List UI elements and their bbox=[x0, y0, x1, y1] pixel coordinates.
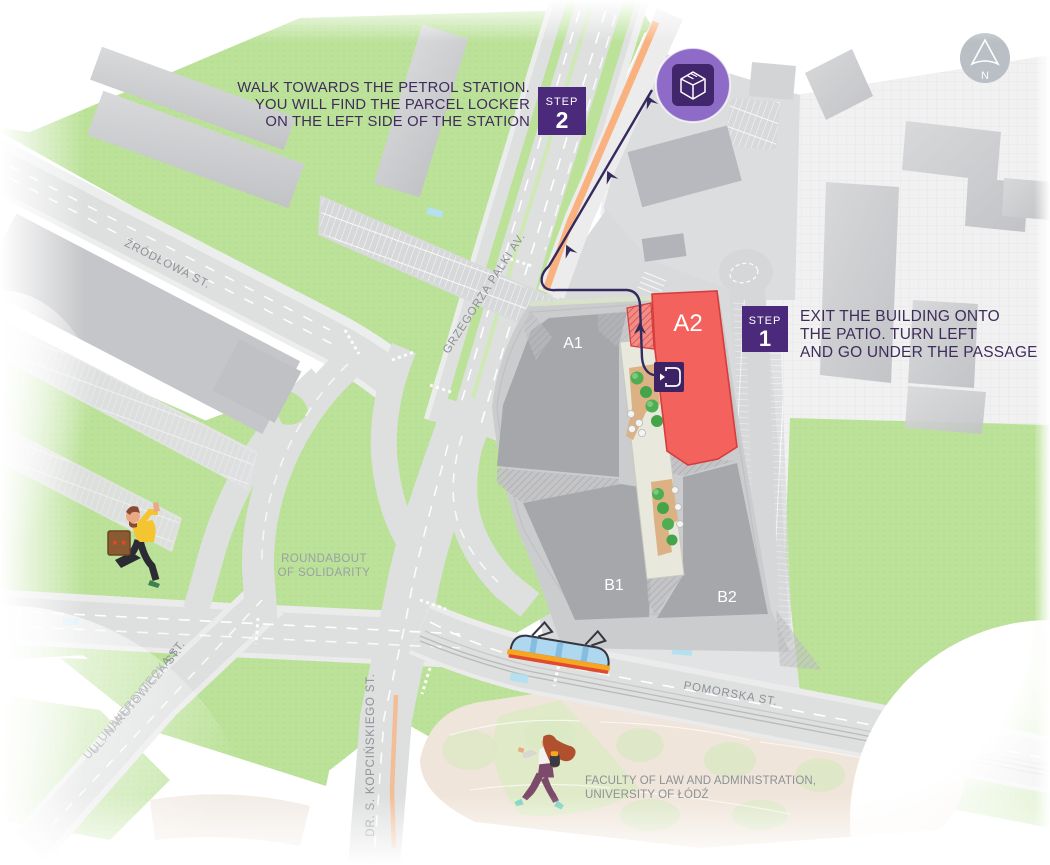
svg-text:THE PATIO. TURN LEFT: THE PATIO. TURN LEFT bbox=[800, 326, 977, 343]
svg-text:N: N bbox=[981, 70, 989, 82]
svg-text:EXIT THE BUILDING ONTO: EXIT THE BUILDING ONTO bbox=[800, 308, 1000, 325]
svg-text:B2: B2 bbox=[717, 589, 737, 606]
svg-text:B1: B1 bbox=[604, 577, 624, 594]
svg-text:A2: A2 bbox=[673, 310, 702, 337]
svg-text:ON THE LEFT SIDE OF THE STATIO: ON THE LEFT SIDE OF THE STATION bbox=[265, 114, 530, 130]
svg-text:AND GO UNDER THE PASSAGE: AND GO UNDER THE PASSAGE bbox=[800, 344, 1038, 361]
svg-text:A1: A1 bbox=[563, 335, 583, 352]
svg-text:ROUNDABOUT: ROUNDABOUT bbox=[281, 553, 367, 565]
svg-text:2: 2 bbox=[556, 107, 569, 133]
svg-text:FACULTY OF LAW AND ADMINISTRAT: FACULTY OF LAW AND ADMINISTRATION, bbox=[585, 775, 816, 787]
svg-text:OF SOLIDARITY: OF SOLIDARITY bbox=[278, 567, 371, 579]
svg-text:YOU WILL FIND THE PARCEL LOCKE: YOU WILL FIND THE PARCEL LOCKER bbox=[255, 97, 530, 113]
svg-text:WALK TOWARDS THE PETROL STATIO: WALK TOWARDS THE PETROL STATION. bbox=[237, 80, 530, 96]
svg-text:1: 1 bbox=[759, 326, 771, 351]
